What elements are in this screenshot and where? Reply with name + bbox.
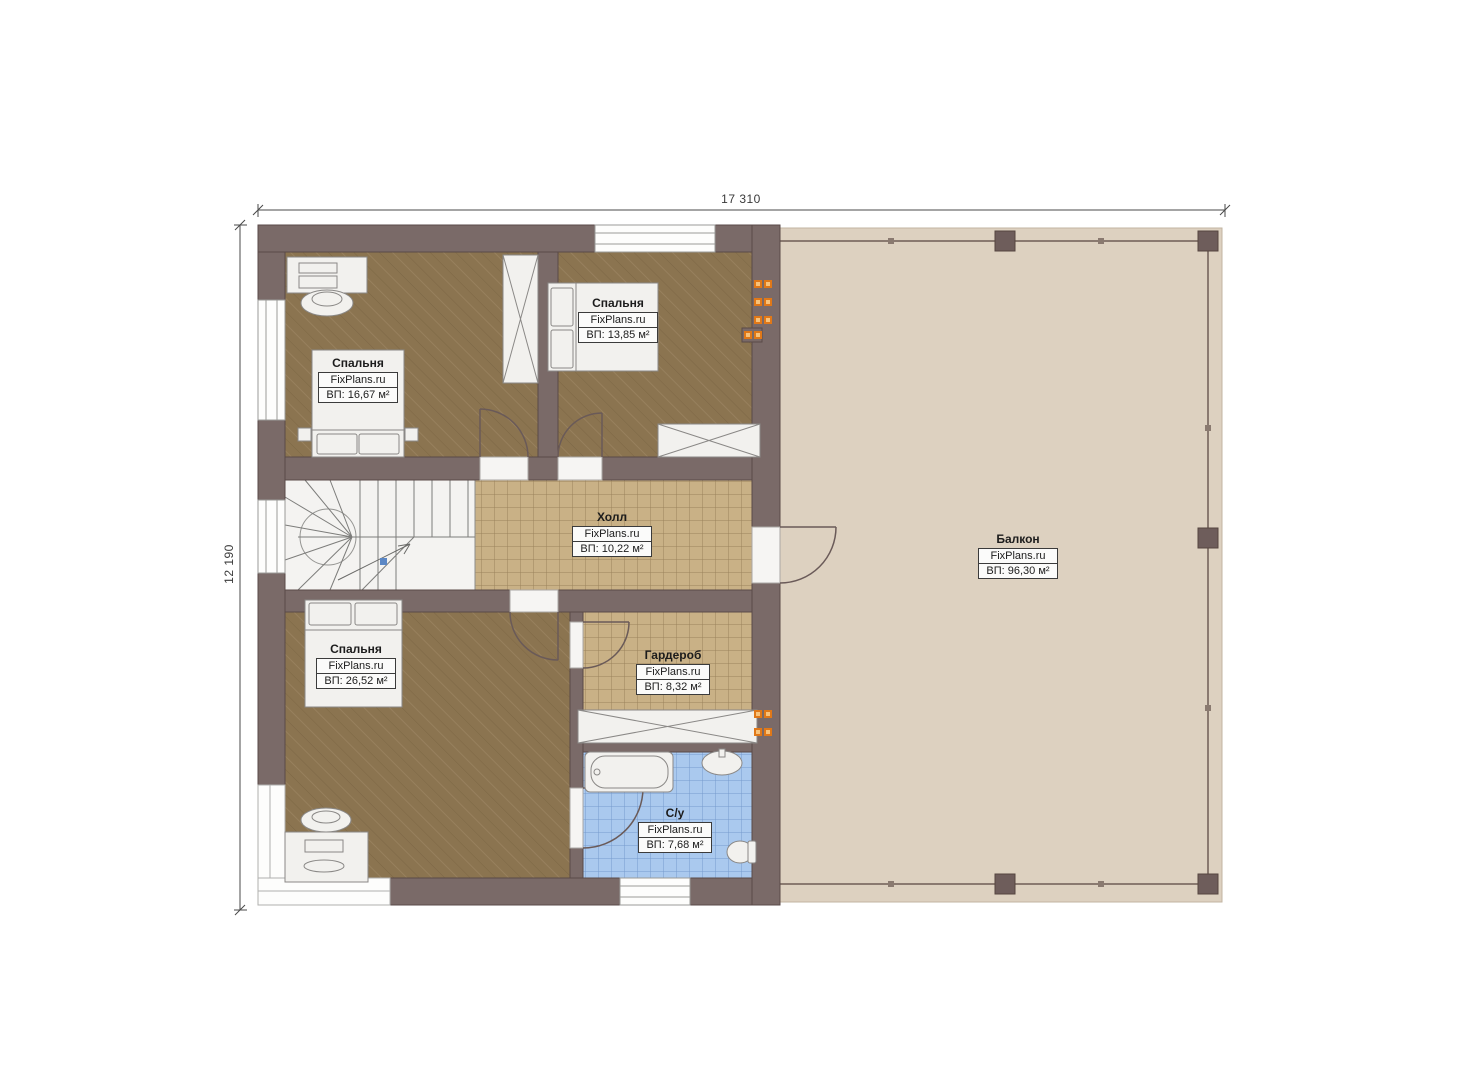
wall-vert-seg1 [570, 612, 583, 622]
room-brand: FixPlans.ru [579, 313, 656, 327]
wall-mid-top-seg1 [285, 457, 480, 480]
room-name: Спальня [566, 296, 670, 310]
room-brand: FixPlans.ru [319, 373, 396, 387]
room-info-box: FixPlans.ru ВП: 16,67 м² [318, 372, 397, 403]
room-area: ВП: 96,30 м² [979, 563, 1056, 578]
window-bottom-bathroom [620, 878, 690, 905]
room-name: Спальня [304, 642, 408, 656]
room-area: ВП: 7,68 м² [639, 837, 710, 852]
bathtub [585, 752, 673, 792]
room-brand: FixPlans.ru [317, 659, 394, 673]
room-info-box: FixPlans.ru ВП: 8,32 м² [636, 664, 709, 695]
closet-between-bedrooms [503, 255, 538, 383]
toilet [727, 841, 756, 863]
room-info-box: FixPlans.ru ВП: 96,30 м² [978, 548, 1057, 579]
room-area: ВП: 10,22 м² [573, 541, 650, 556]
wall-mid-top-seg2 [528, 457, 558, 480]
wall-wardrobe-bathroom [583, 743, 752, 752]
room-name: Спальня [306, 356, 410, 370]
floor-plan-canvas: 17 310 12 190 Спальня FixPlans.ru ВП: 16… [0, 0, 1474, 1080]
dimension-top-label: 17 310 [701, 192, 781, 206]
dimension-left-label: 12 190 [222, 533, 236, 595]
room-name: С/у [623, 806, 727, 820]
window-left-bedroom-tl [258, 300, 285, 420]
room-area: ВП: 16,67 м² [319, 387, 396, 402]
room-label-bedroom-top-middle: Спальня FixPlans.ru ВП: 13,85 м² [566, 296, 670, 343]
room-label-balcony: Балкон FixPlans.ru ВП: 96,30 м² [958, 532, 1078, 579]
room-label-bedroom-bottom: Спальня FixPlans.ru ВП: 26,52 м² [304, 642, 408, 689]
room-brand: FixPlans.ru [979, 549, 1056, 563]
wall-vert-seg3 [570, 848, 583, 878]
room-name: Холл [560, 510, 664, 524]
wall-left-seg1 [258, 252, 285, 300]
room-label-wardrobe: Гардероб FixPlans.ru ВП: 8,32 м² [617, 648, 729, 695]
wardrobe-closet-unit [578, 710, 757, 743]
room-brand: FixPlans.ru [637, 665, 708, 679]
room-brand: FixPlans.ru [573, 527, 650, 541]
stairs-floor [285, 480, 475, 590]
room-label-hall: Холл FixPlans.ru ВП: 10,22 м² [560, 510, 664, 557]
room-info-box: FixPlans.ru ВП: 10,22 м² [572, 526, 651, 557]
room-area: ВП: 13,85 м² [579, 327, 656, 342]
wardrobe-unit-bedroom-tm [658, 424, 760, 457]
room-name: Гардероб [617, 648, 729, 662]
room-info-box: FixPlans.ru ВП: 7,68 м² [638, 822, 711, 853]
room-info-box: FixPlans.ru ВП: 26,52 м² [316, 658, 395, 689]
wall-right-seg1 [752, 225, 780, 527]
wall-left-seg3 [258, 573, 285, 785]
stairs-direction-marker [380, 558, 387, 565]
room-brand: FixPlans.ru [639, 823, 710, 837]
window-top-bedroom-tm [595, 225, 715, 252]
room-area: ВП: 8,32 м² [637, 679, 708, 694]
room-label-bedroom-top-left: Спальня FixPlans.ru ВП: 16,67 м² [306, 356, 410, 403]
room-name: Балкон [958, 532, 1078, 546]
window-left-stairs [258, 500, 285, 573]
room-label-bathroom: С/у FixPlans.ru ВП: 7,68 м² [623, 806, 727, 853]
wall-bottom-seg1 [390, 878, 620, 905]
room-area: ВП: 26,52 м² [317, 673, 394, 688]
wall-mid-top-seg3 [602, 457, 752, 480]
wall-left-seg2 [258, 420, 285, 500]
room-info-box: FixPlans.ru ВП: 13,85 м² [578, 312, 657, 343]
wall-mid-bottom-seg2 [558, 590, 752, 612]
